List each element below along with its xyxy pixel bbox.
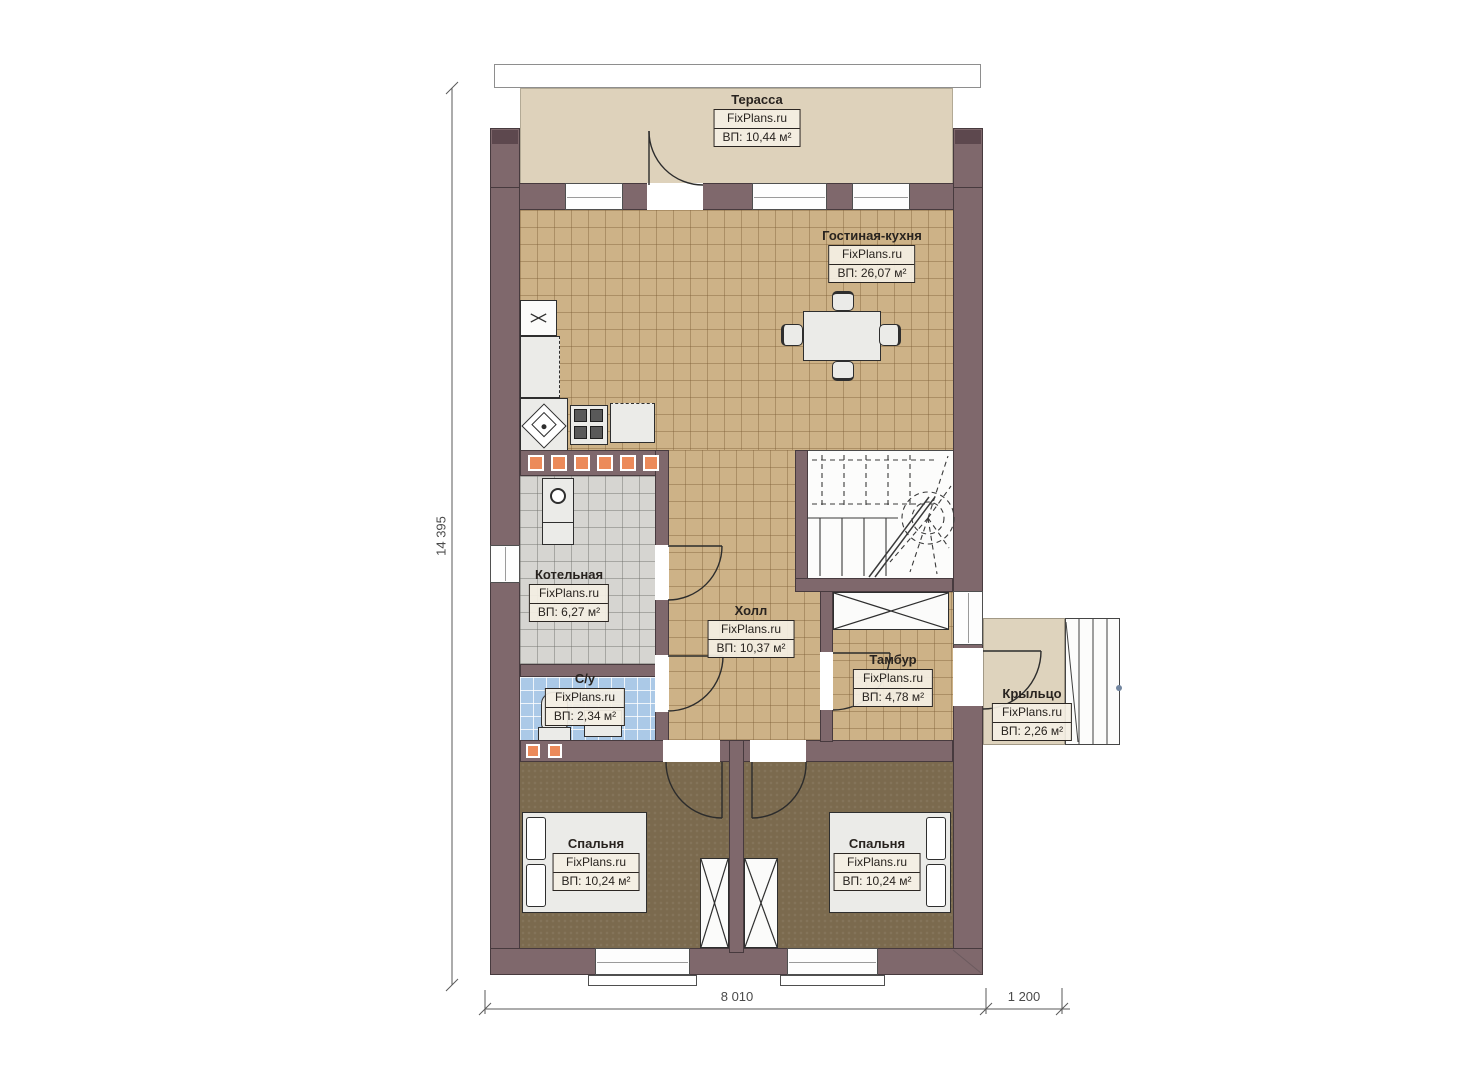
- vent-block: [620, 455, 636, 471]
- window-left-boiler: [490, 545, 520, 583]
- room-tag: FixPlans.ru ВП: 2,34 м²: [545, 688, 625, 726]
- room-name: Крыльцо: [992, 686, 1072, 701]
- room-name: Гостиная-кухня: [822, 228, 922, 243]
- dimension-width-porch: 1 200: [1008, 989, 1041, 1004]
- vent-block: [548, 744, 562, 758]
- fridge-icon: [520, 300, 557, 336]
- floor-plan: Терасса FixPlans.ru ВП: 10,44 м² Гостина…: [0, 0, 1473, 1080]
- hall-cabinet-icon: [833, 592, 949, 630]
- window-sill: [588, 975, 697, 986]
- vent-block: [528, 455, 544, 471]
- chair: [781, 324, 803, 346]
- vent-block: [643, 455, 659, 471]
- room-label-terrace: Терасса FixPlans.ru ВП: 10,44 м²: [714, 92, 801, 147]
- wardrobe-icon: [700, 858, 729, 948]
- room-area: ВП: 26,07 м²: [830, 264, 915, 283]
- room-brand: FixPlans.ru: [993, 704, 1071, 722]
- vent-block: [551, 455, 567, 471]
- room-brand: FixPlans.ru: [854, 670, 932, 688]
- room-brand: FixPlans.ru: [546, 689, 624, 707]
- room-label-tambur: Тамбур FixPlans.ru ВП: 4,78 м²: [853, 652, 933, 707]
- pillow: [926, 817, 946, 860]
- dimension-height: 14 395: [434, 516, 449, 556]
- pillow: [926, 864, 946, 907]
- room-label-hall: Холл FixPlans.ru ВП: 10,37 м²: [708, 603, 795, 658]
- room-name: Котельная: [529, 567, 609, 582]
- vent-block: [526, 744, 540, 758]
- room-brand: FixPlans.ru: [530, 585, 608, 603]
- room-name: Терасса: [714, 92, 801, 107]
- roof-edge: [494, 64, 981, 88]
- room-area: ВП: 2,26 м²: [993, 722, 1071, 741]
- pillow: [526, 817, 546, 860]
- room-label-boiler: Котельная FixPlans.ru ВП: 6,27 м²: [529, 567, 609, 622]
- window-top-3: [852, 183, 910, 210]
- stove-burner: [574, 426, 587, 439]
- room-area: ВП: 10,44 м²: [715, 128, 800, 147]
- window-top-2: [752, 183, 827, 210]
- window-top-1: [565, 183, 623, 210]
- room-area: ВП: 10,37 м²: [709, 639, 794, 658]
- stove-burner: [574, 409, 587, 422]
- room-brand: FixPlans.ru: [835, 854, 920, 872]
- door-opening-wc: [655, 655, 669, 712]
- door-opening-tambur: [820, 652, 833, 710]
- room-label-bedroom-1: Спальня FixPlans.ru ВП: 10,24 м²: [553, 836, 640, 891]
- vent-block: [574, 455, 590, 471]
- room-tag: FixPlans.ru ВП: 4,78 м²: [853, 669, 933, 707]
- room-brand: FixPlans.ru: [715, 110, 800, 128]
- room-brand: FixPlans.ru: [709, 621, 794, 639]
- room-tag: FixPlans.ru ВП: 26,07 м²: [829, 245, 916, 283]
- room-label-wc: С/у FixPlans.ru ВП: 2,34 м²: [545, 671, 625, 726]
- room-area: ВП: 10,24 м²: [554, 872, 639, 891]
- stove-burner: [590, 426, 603, 439]
- kitchen-counter-2: [610, 403, 655, 443]
- pillow: [526, 864, 546, 907]
- room-area: ВП: 10,24 м²: [835, 872, 920, 891]
- wall-between-bedrooms: [729, 740, 744, 953]
- room-label-bedroom-2: Спальня FixPlans.ru ВП: 10,24 м²: [834, 836, 921, 891]
- wall-stairs-bottom: [795, 578, 953, 592]
- door-opening-terrace: [647, 183, 703, 210]
- room-area: ВП: 2,34 м²: [546, 707, 624, 726]
- wall-right: [953, 183, 983, 975]
- room-tag: FixPlans.ru ВП: 10,24 м²: [834, 853, 921, 891]
- wall-stairs-left: [795, 450, 808, 592]
- chair: [832, 291, 854, 311]
- room-name: Тамбур: [853, 652, 933, 667]
- room-label-porch: Крыльцо FixPlans.ru ВП: 2,26 м²: [992, 686, 1072, 741]
- room-name: Спальня: [834, 836, 921, 851]
- room-brand: FixPlans.ru: [830, 246, 915, 264]
- window-sill: [780, 975, 885, 986]
- toilet-cistern: [538, 727, 571, 741]
- room-tag: FixPlans.ru ВП: 10,37 м²: [708, 620, 795, 658]
- dimension-width-main: 8 010: [721, 989, 754, 1004]
- wardrobe-icon: [744, 858, 778, 948]
- room-tag: FixPlans.ru ВП: 2,26 м²: [992, 703, 1072, 741]
- window-bottom-1: [595, 948, 690, 975]
- porch-steps: [1065, 618, 1120, 745]
- room-brand: FixPlans.ru: [554, 854, 639, 872]
- door-opening-entrance: [953, 648, 983, 706]
- room-area: ВП: 4,78 м²: [854, 688, 932, 707]
- chair: [832, 361, 854, 381]
- vent-block: [597, 455, 613, 471]
- room-name: С/у: [545, 671, 625, 686]
- room-label-living: Гостиная-кухня FixPlans.ru ВП: 26,07 м²: [822, 228, 922, 283]
- staircase: [807, 450, 953, 579]
- dining-table: [803, 311, 881, 361]
- room-tag: FixPlans.ru ВП: 6,27 м²: [529, 584, 609, 622]
- room-name: Спальня: [553, 836, 640, 851]
- door-opening-boiler: [655, 545, 669, 600]
- stove-burner: [590, 409, 603, 422]
- room-tag: FixPlans.ru ВП: 10,44 м²: [714, 109, 801, 147]
- room-tag: FixPlans.ru ВП: 10,24 м²: [553, 853, 640, 891]
- window-right-tambur: [953, 591, 983, 645]
- kitchen-counter: [520, 336, 560, 398]
- door-opening-bedroom-1: [663, 740, 720, 762]
- chair: [879, 324, 901, 346]
- room-area: ВП: 6,27 м²: [530, 603, 608, 622]
- pier-cap: [492, 130, 518, 144]
- boiler-divider: [543, 522, 573, 523]
- door-opening-bedroom-2: [750, 740, 806, 762]
- pier-cap: [955, 130, 981, 144]
- room-name: Холл: [708, 603, 795, 618]
- window-bottom-2: [787, 948, 878, 975]
- boiler-gauge: [550, 488, 566, 504]
